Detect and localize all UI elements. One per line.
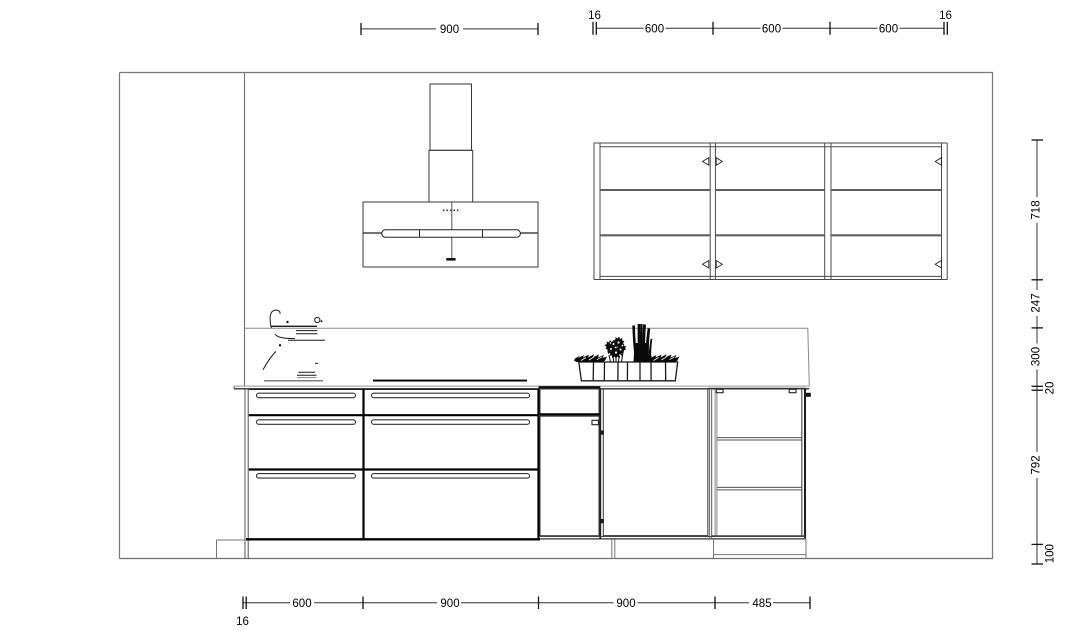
svg-text:247: 247 [1031, 293, 1043, 312]
svg-text:600: 600 [879, 23, 898, 35]
svg-text:485: 485 [752, 598, 771, 610]
svg-text:600: 600 [292, 598, 311, 610]
svg-text:900: 900 [440, 24, 459, 36]
svg-text:100: 100 [1045, 544, 1057, 563]
svg-text:16: 16 [236, 616, 249, 628]
svg-text:600: 600 [645, 23, 664, 35]
svg-text:792: 792 [1031, 455, 1043, 474]
svg-text:20: 20 [1045, 382, 1057, 395]
svg-text:16: 16 [939, 10, 952, 22]
svg-text:600: 600 [762, 23, 781, 35]
svg-text:16: 16 [588, 10, 601, 22]
svg-text:300: 300 [1031, 347, 1043, 366]
svg-text:900: 900 [616, 598, 635, 610]
svg-text:718: 718 [1031, 200, 1043, 219]
svg-text:900: 900 [440, 598, 459, 610]
